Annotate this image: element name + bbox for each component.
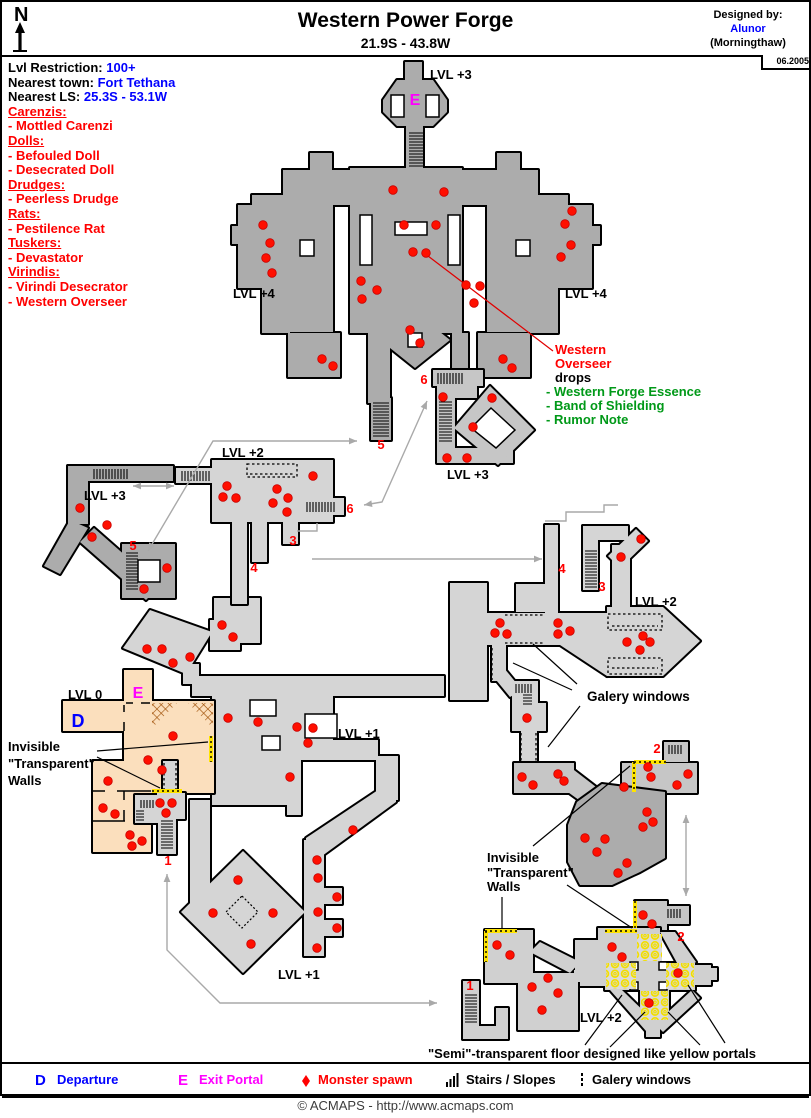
- monster-spawn-dot: [373, 286, 382, 295]
- monster-spawn-dot: [649, 818, 658, 827]
- monster-spawn-dot: [286, 773, 295, 782]
- map-label: LVL +3: [447, 467, 489, 482]
- map-label: LVL +2: [580, 1010, 622, 1025]
- dungeon-area-lvl2-left: [176, 460, 344, 604]
- monster-spawn-dot: [608, 943, 617, 952]
- note-line: "Transparent": [8, 755, 95, 772]
- connection-arrowhead: [166, 483, 174, 490]
- connection-arrowhead: [133, 483, 141, 490]
- invisible-walls-note-left: Invisible "Transparent" Walls: [8, 738, 95, 789]
- map-hole: [426, 95, 439, 117]
- overseer-note-line: Western: [546, 343, 701, 357]
- legend-exit-key: E: [178, 1072, 188, 1089]
- monster-spawn-dot: [169, 732, 178, 741]
- monster-spawn-dot: [357, 277, 366, 286]
- map-hole: [659, 962, 667, 970]
- monster-spawn-dot: [673, 781, 682, 790]
- monster-spawn-dot: [518, 773, 527, 782]
- annotation-line: [668, 1012, 700, 1045]
- portal-floor-patch: [637, 934, 662, 961]
- monster-spawn-dot: [557, 253, 566, 262]
- bestiary-heading: Carenzis:: [8, 105, 175, 120]
- monster-spawn-dot: [304, 739, 313, 748]
- monster-spawn-dot: [674, 969, 683, 978]
- portal-floor-patch: [606, 963, 636, 989]
- bestiary-heading: Dolls:: [8, 134, 175, 149]
- map-hole: [516, 240, 530, 256]
- monster-spawn-dot: [623, 638, 632, 647]
- monster-spawn-dot: [158, 645, 167, 654]
- monster-spawn-dot: [266, 239, 275, 248]
- monster-spawn-dot: [528, 983, 537, 992]
- monster-spawn-dot: [554, 770, 563, 779]
- bestiary-heading: Drudges:: [8, 178, 175, 193]
- map-label: LVL +1: [278, 967, 320, 982]
- monster-spawn-dot: [259, 221, 268, 230]
- monster-spawn-dot: [162, 809, 171, 818]
- monster-spawn-dot: [648, 920, 657, 929]
- monster-spawn-dot: [496, 619, 505, 628]
- connection-arrowhead: [683, 815, 690, 823]
- monster-spawn-dot: [639, 632, 648, 641]
- monster-spawn-dot: [469, 423, 478, 432]
- map-label: 5: [377, 437, 384, 452]
- connection-arrowhead: [364, 500, 372, 507]
- monster-spawn-dot: [620, 783, 629, 792]
- monster-spawn-dot: [618, 953, 627, 962]
- map-hole: [659, 982, 667, 990]
- dungeon-area-lvl2-right: [450, 525, 700, 763]
- monster-spawn-dot: [88, 533, 97, 542]
- legend-exit-label: Exit Portal: [199, 1072, 263, 1087]
- monster-spawn-dot: [333, 893, 342, 902]
- monster-spawn-dot: [593, 848, 602, 857]
- map-label: E: [133, 685, 144, 702]
- note-line: Walls: [487, 880, 574, 895]
- monster-spawn-dot: [581, 834, 590, 843]
- bestiary-heading: Rats:: [8, 207, 175, 222]
- monster-spawn-dot: [111, 810, 120, 819]
- monster-spawn-dot: [508, 364, 517, 373]
- monster-spawn-dot: [409, 248, 418, 257]
- monster-spawn-dot: [439, 393, 448, 402]
- map-label: E: [410, 92, 421, 109]
- map-hole: [391, 95, 404, 117]
- map-label: LVL +2: [222, 445, 264, 460]
- bestiary-item: - Western Overseer: [8, 295, 175, 310]
- monster-spawn-dot: [358, 295, 367, 304]
- monster-spawn-dot: [144, 756, 153, 765]
- nearest-town: Nearest town: Fort Tethana: [8, 76, 175, 91]
- monster-spawn-dot: [636, 646, 645, 655]
- map-label: LVL +4: [565, 286, 608, 301]
- level-restriction: Lvl Restriction: 100+: [8, 61, 175, 76]
- monster-spawn-dot: [601, 835, 610, 844]
- monster-spawn-dot: [313, 856, 322, 865]
- connection-arrow: [545, 505, 618, 521]
- monster-spawn-dot: [126, 831, 135, 840]
- designed-by-label: Designed by:: [693, 8, 803, 22]
- monster-spawn-dot: [269, 499, 278, 508]
- monster-spawn-dot: [416, 339, 425, 348]
- invisible-walls-note-right: Invisible "Transparent" Walls: [487, 851, 574, 895]
- monster-spawn-dot: [349, 826, 358, 835]
- monster-spawn-dot: [229, 633, 238, 642]
- monster-spawn-dot: [99, 804, 108, 813]
- monster-spawn-dot: [128, 842, 137, 851]
- monster-spawn-dot: [273, 485, 282, 494]
- monster-spawn-dot: [560, 777, 569, 786]
- monster-spawn-dot: [163, 564, 172, 573]
- monster-spawn-dot: [523, 714, 532, 723]
- annotation-line: [688, 985, 725, 1043]
- overseer-drop-item: - Rumor Note: [546, 413, 701, 427]
- note-line: "Transparent": [487, 866, 574, 881]
- nearest-lifestone: Nearest LS: 25.3S - 53.1W: [8, 90, 175, 105]
- bestiary-item: - Virindi Desecrator: [8, 280, 175, 295]
- monster-spawn-dot: [400, 221, 409, 230]
- monster-spawn-dot: [309, 724, 318, 733]
- monster-spawn-dot: [432, 221, 441, 230]
- monster-spawn-dot: [309, 472, 318, 481]
- designer-world: (Morningthaw): [693, 36, 803, 50]
- monster-spawn-dot: [158, 766, 167, 775]
- bestiary-item: - Pestilence Rat: [8, 222, 175, 237]
- map-header: N Western Power Forge 21.9S - 43.8W Desi…: [2, 2, 809, 57]
- monster-spawn-dot: [218, 621, 227, 630]
- monster-spawn-dot: [566, 627, 575, 636]
- monster-spawn-dot: [646, 638, 655, 647]
- map-label: LVL +3: [84, 488, 126, 503]
- monster-spawn-dot: [614, 869, 623, 878]
- monster-spawn-dot: [169, 659, 178, 668]
- monster-spawn-dot: [209, 909, 218, 918]
- monster-spawn-dot: [506, 951, 515, 960]
- monster-spawn-dot: [143, 645, 152, 654]
- legend-stairs-label: Stairs / Slopes: [466, 1072, 556, 1087]
- connection-arrowhead: [349, 438, 357, 445]
- map-date: 06.2005: [761, 55, 810, 70]
- monster-spawn-dot: [219, 493, 228, 502]
- monster-spawn-dot: [76, 504, 85, 513]
- connection-arrowhead: [683, 888, 690, 896]
- monster-spawn-dot: [470, 299, 479, 308]
- map-label: 1: [164, 853, 171, 868]
- monster-spawn-dot: [476, 282, 485, 291]
- overseer-drop-item: - Western Forge Essence: [546, 385, 701, 399]
- monster-spawn-dot: [293, 723, 302, 732]
- monster-spawn-dot: [639, 911, 648, 920]
- bestiary-item: - Befouled Doll: [8, 149, 175, 164]
- map-label: 3: [598, 579, 605, 594]
- bestiary-heading: Virindis:: [8, 265, 175, 280]
- monster-spawn-dot: [463, 454, 472, 463]
- designer-credit: Designed by: Alunor (Morningthaw): [693, 8, 803, 50]
- monster-spawn-dot: [329, 362, 338, 371]
- connection-arrowhead: [429, 1000, 437, 1007]
- connection-arrowhead: [164, 874, 171, 882]
- monster-spawn-dot: [223, 482, 232, 491]
- bestiary-item: - Peerless Drudge: [8, 192, 175, 207]
- monster-spawn-dot: [314, 908, 323, 917]
- monster-spawn-dot: [567, 241, 576, 250]
- monster-spawn-dot: [488, 394, 497, 403]
- monster-spawn-dot: [493, 941, 502, 950]
- legend-gallery-label: Galery windows: [592, 1072, 691, 1087]
- monster-spawn-dot: [440, 188, 449, 197]
- monster-spawn-dot: [406, 326, 415, 335]
- monster-spawn-dot: [544, 974, 553, 983]
- designer-name: Alunor: [693, 22, 803, 36]
- overseer-drop-item: - Band of Shielding: [546, 399, 701, 413]
- map-hole: [138, 560, 160, 582]
- monster-spawn-dot: [499, 355, 508, 364]
- monster-spawn-dot: [554, 630, 563, 639]
- monster-spawn-dot: [333, 924, 342, 933]
- semi-transparent-floor-note: "Semi"-transparent floor designed like y…: [428, 1046, 756, 1061]
- map-label: LVL +1: [338, 726, 380, 741]
- legend-departure-label: Departure: [57, 1072, 118, 1087]
- monster-spawn-dot: [318, 355, 327, 364]
- monster-spawn-dot: [554, 619, 563, 628]
- bestiary-item: - Devastator: [8, 251, 175, 266]
- map-hole: [250, 700, 276, 716]
- monster-spawn-dot: [314, 874, 323, 883]
- monster-spawn-dot: [224, 714, 233, 723]
- map-hole: [360, 215, 372, 265]
- monster-spawn-dot: [639, 823, 648, 832]
- annotation-line: [567, 885, 632, 928]
- map-label: LVL +4: [233, 286, 276, 301]
- monster-spawn-dot: [503, 630, 512, 639]
- bestiary-item: - Mottled Carenzi: [8, 119, 175, 134]
- monster-spawn-dot: [268, 269, 277, 278]
- monster-spawn-dot: [554, 989, 563, 998]
- monster-spawn-dot: [140, 585, 149, 594]
- map-legend: D Departure E Exit Portal Monster spawn …: [2, 1062, 809, 1098]
- monster-spawn-dot: [284, 494, 293, 503]
- map-label: 4: [250, 560, 258, 575]
- monster-spawn-dot: [269, 909, 278, 918]
- monster-spawn-dot: [247, 940, 256, 949]
- overseer-note-line: Overseer: [546, 357, 701, 371]
- map-label: LVL 0: [68, 687, 102, 702]
- monster-spawn-dot: [643, 808, 652, 817]
- monster-spawn-dot: [138, 837, 147, 846]
- map-label: 1: [466, 978, 473, 993]
- legend-departure-key: D: [35, 1072, 46, 1089]
- map-label: 2: [653, 741, 660, 756]
- note-line: Invisible: [487, 851, 574, 866]
- note-line: Invisible: [8, 738, 95, 755]
- page-title: Western Power Forge: [2, 9, 809, 33]
- monster-spawn-dot: [313, 944, 322, 953]
- map-hole: [300, 240, 314, 256]
- overseer-note-line: drops: [546, 371, 701, 385]
- stairs-icon: [445, 1072, 461, 1088]
- map-info-panel: Lvl Restriction: 100+ Nearest town: Fort…: [8, 61, 175, 309]
- monster-spawn-icon: [300, 1075, 312, 1087]
- monster-spawn-dot: [637, 535, 646, 544]
- monster-spawn-dot: [254, 718, 263, 727]
- annotation-line: [548, 706, 580, 747]
- monster-spawn-dot: [422, 249, 431, 258]
- monster-spawn-dot: [234, 876, 243, 885]
- overseer-drops-note: Western Overseer drops - Western Forge E…: [546, 343, 701, 427]
- note-line: Walls: [8, 772, 95, 789]
- map-label: 3: [289, 533, 296, 548]
- monster-spawn-dot: [561, 220, 570, 229]
- monster-spawn-dot: [389, 186, 398, 195]
- monster-spawn-dot: [186, 653, 195, 662]
- monster-spawn-dot: [262, 254, 271, 263]
- monster-spawn-dot: [568, 207, 577, 216]
- copyright: © ACMAPS - http://www.acmaps.com: [0, 1098, 811, 1113]
- monster-spawn-dot: [168, 799, 177, 808]
- map-coordinates: 21.9S - 43.8W: [2, 35, 809, 51]
- monster-spawn-dot: [645, 999, 654, 1008]
- bestiary-item: - Desecrated Doll: [8, 163, 175, 178]
- monster-spawn-dot: [647, 773, 656, 782]
- map-label: 6: [346, 501, 353, 516]
- monster-spawn-dot: [491, 629, 500, 638]
- monster-spawn-dot: [443, 454, 452, 463]
- map-label: LVL +2: [635, 594, 677, 609]
- map-label: 4: [558, 561, 566, 576]
- monster-spawn-dot: [232, 494, 241, 503]
- map-hole: [262, 736, 280, 750]
- bestiary-heading: Tuskers:: [8, 236, 175, 251]
- monster-spawn-dot: [684, 770, 693, 779]
- map-label: 6: [420, 372, 427, 387]
- monster-spawn-dot: [529, 781, 538, 790]
- monster-spawn-dot: [623, 859, 632, 868]
- gallery-windows-note: Galery windows: [587, 689, 690, 704]
- monster-spawn-dot: [103, 521, 112, 530]
- monster-spawn-dot: [156, 799, 165, 808]
- monster-spawn-dot: [283, 508, 292, 517]
- map-label: 5: [129, 538, 136, 553]
- map-hole: [448, 215, 460, 265]
- legend-monster-label: Monster spawn: [318, 1072, 413, 1087]
- map-label: 2: [677, 929, 684, 944]
- map-label: D: [72, 711, 85, 731]
- monster-spawn-dot: [104, 777, 113, 786]
- connection-arrowhead: [534, 556, 542, 563]
- monster-spawn-dot: [617, 553, 626, 562]
- gallery-windows-icon: [578, 1072, 586, 1088]
- monster-spawn-dot: [462, 281, 471, 290]
- acmaps-dungeon-map-page: LVL +3LVL +4LVL +4LVL +3LVL +3LVL +2LVL …: [0, 0, 811, 1118]
- monster-spawn-dot: [644, 763, 653, 772]
- map-label: LVL +3: [430, 67, 472, 82]
- monster-spawn-dot: [538, 1006, 547, 1015]
